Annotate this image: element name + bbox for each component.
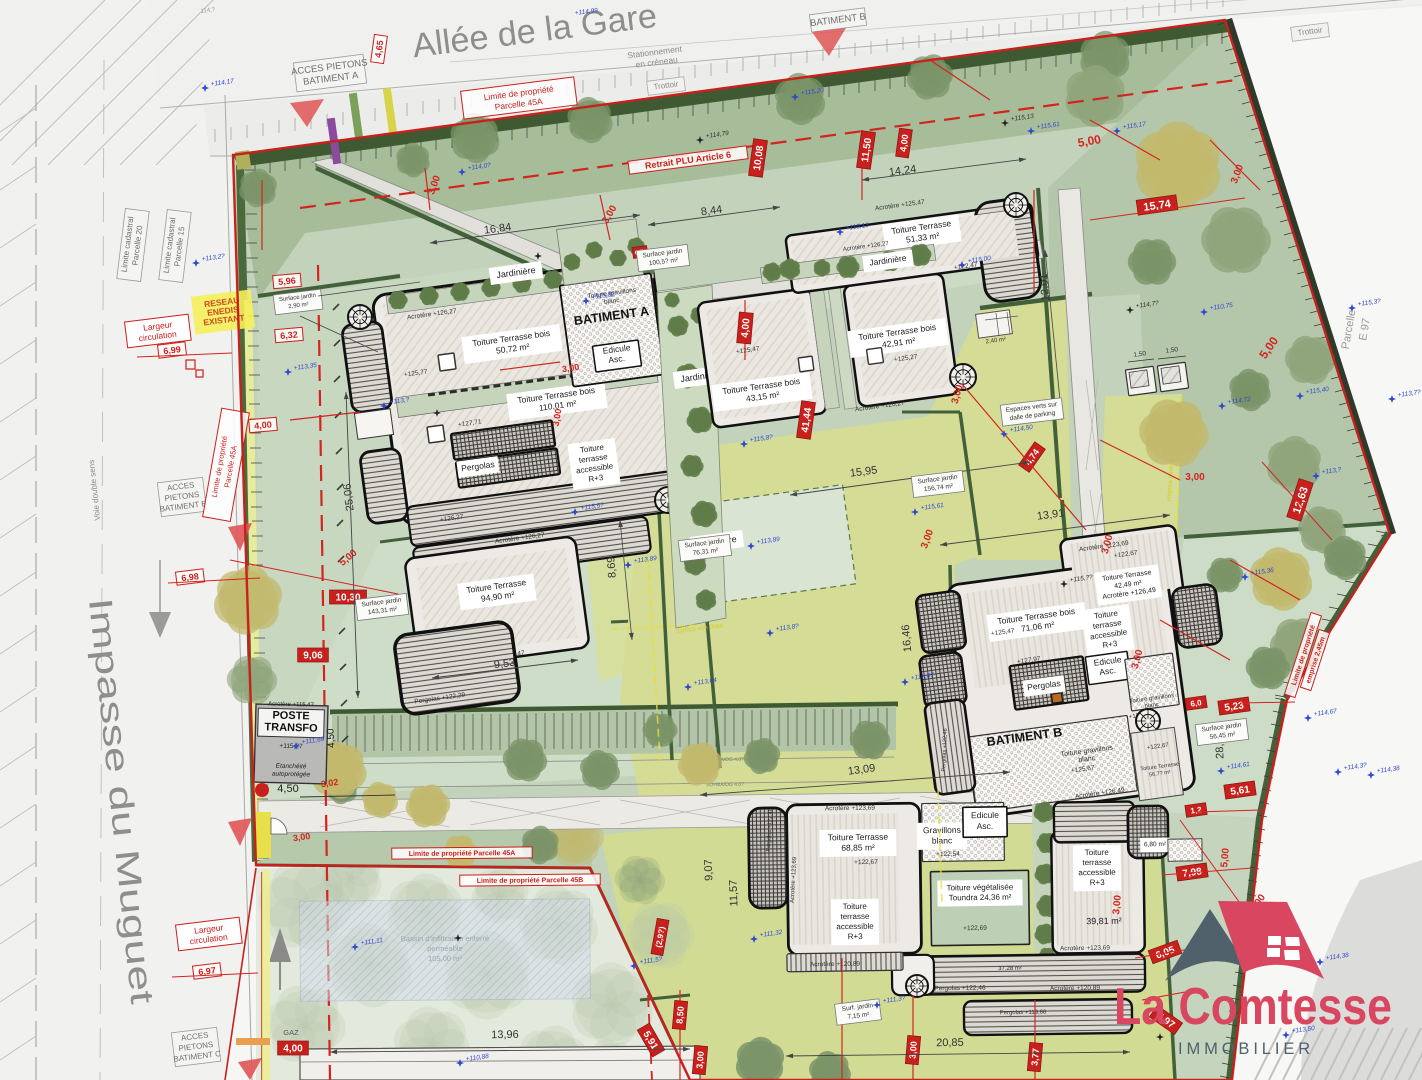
svg-text:GAZ: GAZ: [283, 1028, 299, 1037]
svg-text:3,00: 3,00: [1185, 472, 1205, 483]
svg-text:9,06: 9,06: [303, 651, 323, 662]
svg-text:39,81 m²: 39,81 m²: [1086, 916, 1122, 926]
svg-text:Edicule: Edicule: [971, 810, 999, 820]
svg-text:4,00: 4,00: [254, 419, 272, 430]
svg-text:8,69: 8,69: [605, 556, 618, 578]
svg-text:Etanchéité: Etanchéité: [276, 763, 307, 771]
svg-text:Toiture végétalisée: Toiture végétalisée: [947, 883, 1014, 893]
svg-text:TRANSFO: TRANSFO: [264, 721, 318, 734]
svg-text:terrasse: terrasse: [1082, 858, 1112, 867]
svg-text:Limite de propriété Parcelle 4: Limite de propriété Parcelle 45A: [409, 850, 516, 858]
svg-text:3,00: 3,00: [694, 1051, 705, 1069]
svg-text:Gravillons: Gravillons: [923, 825, 961, 836]
svg-text:Pergolas +119,66: Pergolas +119,66: [1000, 1010, 1048, 1017]
svg-text:Bassin d’infiltration enterré: Bassin d’infiltration enterré: [401, 934, 489, 944]
svg-text:Asc.: Asc.: [977, 821, 994, 831]
svg-text:Acrotère +120,89: Acrotère +120,89: [810, 961, 861, 969]
svg-text:5,00: 5,00: [1219, 847, 1232, 868]
svg-text:accessible: accessible: [1078, 868, 1116, 878]
svg-text:3,00: 3,00: [907, 1041, 918, 1059]
svg-text:blanc: blanc: [932, 835, 953, 845]
svg-text:6,80 m²: 6,80 m²: [1144, 841, 1167, 848]
svg-text:Acrotère +123,69: Acrotère +123,69: [1060, 945, 1111, 953]
svg-text:Acrotère +120,89: Acrotère +120,89: [1050, 985, 1101, 993]
svg-text:Toundra 24,36 m²: Toundra 24,36 m²: [949, 893, 1012, 903]
svg-text:+122,69: +122,69: [963, 925, 987, 932]
svg-text:4,00: 4,00: [283, 1044, 303, 1055]
svg-text:3,77: 3,77: [1029, 1048, 1040, 1066]
svg-text:13,96: 13,96: [491, 1029, 519, 1041]
svg-text:autoprotégée: autoprotégée: [272, 771, 311, 779]
svg-text:terrasse: terrasse: [840, 912, 870, 921]
svg-text:Acrotère +115,47: Acrotère +115,47: [268, 701, 315, 708]
svg-text:Toiture: Toiture: [1085, 848, 1110, 857]
svg-text:R+3: R+3: [848, 932, 864, 941]
svg-text:Toiture: Toiture: [843, 902, 868, 911]
svg-text:20,85: 20,85: [936, 1037, 964, 1049]
svg-text:6,99: 6,99: [163, 344, 182, 356]
svg-text:3,00: 3,00: [1111, 894, 1124, 915]
svg-text:6,32: 6,32: [280, 329, 298, 340]
svg-text:4,50: 4,50: [325, 728, 337, 749]
svg-text:37,28 m²: 37,28 m²: [998, 966, 1022, 972]
svg-text:POSTE: POSTE: [272, 710, 310, 723]
svg-text:68,85 m²: 68,85 m²: [841, 842, 875, 852]
svg-text:+122,67: +122,67: [854, 859, 878, 866]
svg-text:9,07: 9,07: [703, 859, 716, 881]
svg-text:4,50: 4,50: [277, 783, 298, 795]
svg-text:1,2: 1,2: [1190, 805, 1203, 816]
svg-text:5,96: 5,96: [278, 275, 296, 286]
svg-text:16,46: 16,46: [900, 624, 914, 652]
svg-text:+115,27: +115,27: [279, 743, 303, 751]
svg-text:accessible: accessible: [836, 922, 874, 932]
svg-text:R+3: R+3: [1090, 878, 1106, 887]
svg-text:Acrotère +123,69: Acrotère +123,69: [825, 805, 876, 813]
svg-text:4,00: 4,00: [740, 317, 753, 338]
svg-text:105,00 m³: 105,00 m³: [428, 954, 462, 963]
svg-text:Toiture Terrasse: Toiture Terrasse: [828, 832, 889, 843]
svg-text:Limite de propriété Parcelle 4: Limite de propriété Parcelle 45B: [477, 877, 584, 885]
svg-text:6,0: 6,0: [1190, 698, 1203, 709]
svg-text:Pergolas +122,46: Pergolas +122,46: [934, 985, 986, 993]
svg-text:8,50: 8,50: [674, 1006, 685, 1024]
svg-text:perméable: perméable: [427, 944, 463, 953]
svg-text:IMMOBILIER: IMMOBILIER: [1178, 1039, 1314, 1058]
svg-text:La Comtesse: La Comtesse: [1114, 978, 1392, 1036]
svg-text:11,57: 11,57: [728, 880, 741, 907]
